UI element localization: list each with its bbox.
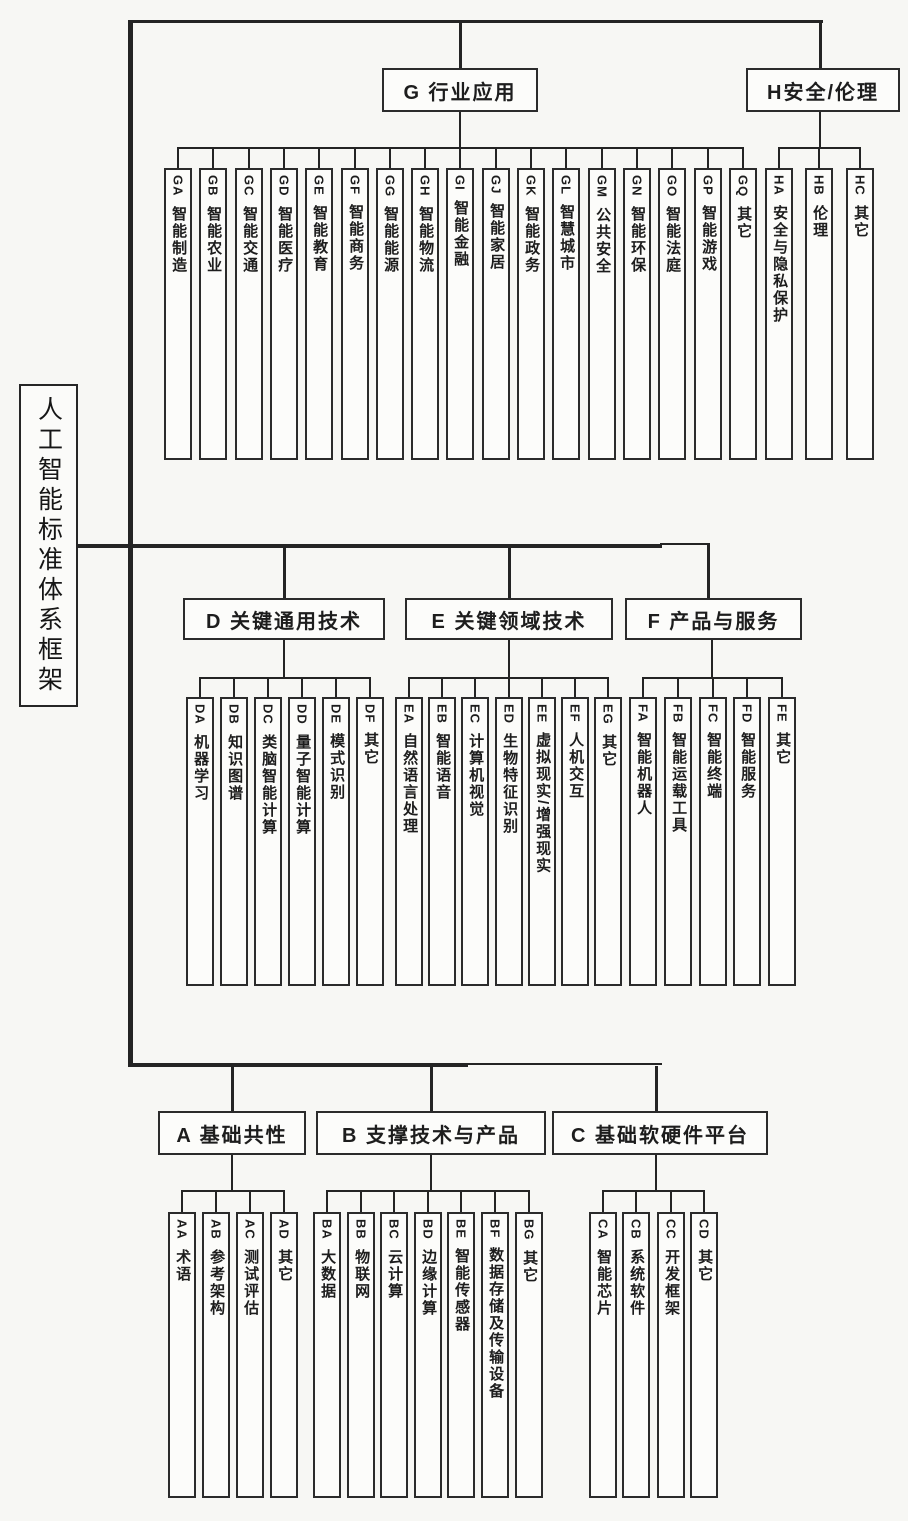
- connector-line: [128, 20, 823, 23]
- leaf-ca: CA智能芯片: [589, 1212, 617, 1498]
- connector-line: [495, 147, 497, 168]
- leaf-gj: GJ智能家居: [482, 168, 510, 460]
- leaf-name: 测试评估: [242, 1249, 258, 1317]
- leaf-code: DD: [296, 704, 309, 725]
- leaf-name: 智能传感器: [453, 1248, 469, 1333]
- connector-line: [601, 147, 603, 168]
- connector-line: [199, 677, 201, 697]
- leaf-name: 智能医疗: [276, 206, 292, 274]
- leaf-df: DF其它: [356, 697, 384, 986]
- leaf-ee: EE虚拟现实/增强现实: [528, 697, 556, 986]
- leaf-name: 智能家居: [488, 203, 504, 271]
- connector-line: [459, 22, 462, 68]
- leaf-code: EA: [403, 704, 416, 724]
- leaf-name: 系统软件: [628, 1249, 644, 1317]
- leaf-gm: GM公共安全: [588, 168, 616, 460]
- leaf-code: GO: [666, 175, 679, 197]
- leaf-ba: BA大数据: [313, 1212, 341, 1498]
- connector-line: [635, 1190, 637, 1212]
- leaf-name: 人机交互: [567, 732, 583, 800]
- leaf-code: AB: [210, 1219, 223, 1240]
- leaf-ha: HA安全与隐私保护: [765, 168, 793, 460]
- leaf-eg: EG其它: [594, 697, 622, 986]
- leaf-name: 术语: [174, 1249, 190, 1283]
- connector-line: [819, 112, 821, 148]
- leaf-name: 智慧城市: [558, 204, 574, 272]
- connector-line: [778, 147, 780, 168]
- leaf-eb: EB智能语音: [428, 697, 456, 986]
- connector-line: [181, 1190, 285, 1192]
- leaf-code: AC: [244, 1219, 257, 1240]
- connector-line: [602, 1190, 604, 1212]
- connector-line: [528, 1190, 530, 1212]
- leaf-code: HC: [854, 175, 867, 196]
- leaf-name: 其它: [852, 205, 868, 239]
- leaf-cc: CC开发框架: [657, 1212, 685, 1498]
- leaf-code: CB: [630, 1219, 643, 1240]
- connector-line: [508, 547, 511, 598]
- leaf-gh: GH智能物流: [411, 168, 439, 460]
- leaf-fb: FB智能运载工具: [664, 697, 692, 986]
- leaf-code: CD: [698, 1219, 711, 1240]
- leaf-aa: AA术语: [168, 1212, 196, 1498]
- leaf-bb: BB物联网: [347, 1212, 375, 1498]
- connector-line: [215, 1190, 217, 1212]
- leaf-code: DE: [330, 704, 343, 724]
- connector-line: [494, 1190, 496, 1212]
- leaf-name: 智能游戏: [700, 205, 716, 273]
- leaf-name: 智能制造: [170, 206, 186, 274]
- section-box-industry-applications: G 行业应用: [382, 68, 538, 112]
- leaf-bf: BF数据存储及传输设备: [481, 1212, 509, 1498]
- leaf-code: GC: [243, 175, 256, 197]
- leaf-name: 伦理: [811, 205, 827, 239]
- leaf-name: 智能服务: [739, 732, 755, 800]
- connector-line: [389, 147, 391, 168]
- leaf-name: 计算机视觉: [467, 733, 483, 818]
- leaf-da: DA机器学习: [186, 697, 214, 986]
- leaf-code: CC: [665, 1219, 678, 1240]
- leaf-name: 智能金融: [452, 200, 468, 268]
- connector-line: [859, 147, 861, 168]
- connector-line: [231, 1066, 234, 1111]
- leaf-name: 知识图谱: [226, 734, 242, 802]
- leaf-code: DC: [262, 704, 275, 725]
- leaf-name: 智能芯片: [595, 1249, 611, 1317]
- connector-line: [249, 1190, 251, 1212]
- leaf-name: 智能商务: [347, 204, 363, 272]
- section-box-basic-software-hardware-platform: C 基础软硬件平台: [552, 1111, 768, 1155]
- connector-line: [655, 1155, 657, 1191]
- leaf-cb: CB系统软件: [622, 1212, 650, 1498]
- connector-line: [677, 677, 679, 697]
- leaf-code: GG: [384, 175, 397, 197]
- leaf-ga: GA智能制造: [164, 168, 192, 460]
- leaf-dc: DC类脑智能计算: [254, 697, 282, 986]
- connector-line: [636, 147, 638, 168]
- connector-line: [607, 677, 609, 697]
- leaf-bc: BC云计算: [380, 1212, 408, 1498]
- leaf-gg: GG智能能源: [376, 168, 404, 460]
- connector-line: [707, 147, 709, 168]
- connector-line: [819, 22, 822, 68]
- leaf-code: BD: [422, 1219, 435, 1240]
- leaf-code: AA: [176, 1219, 189, 1240]
- leaf-gn: GN智能环保: [623, 168, 651, 460]
- connector-line: [318, 147, 320, 168]
- leaf-code: HA: [773, 175, 786, 196]
- leaf-name: 其它: [600, 734, 616, 768]
- connector-line: [508, 677, 510, 697]
- leaf-name: 其它: [362, 732, 378, 766]
- connector-line: [671, 147, 673, 168]
- leaf-name: 智能环保: [629, 206, 645, 274]
- leaf-name: 其它: [276, 1249, 292, 1283]
- leaf-ge: GE智能教育: [305, 168, 333, 460]
- leaf-code: FA: [637, 704, 650, 723]
- leaf-code: GM: [596, 175, 609, 198]
- connector-line: [712, 677, 714, 697]
- leaf-name: 虚拟现实/增强现实: [534, 732, 550, 874]
- connector-line: [283, 547, 286, 598]
- leaf-name: 物联网: [353, 1249, 369, 1300]
- connector-line: [602, 1190, 705, 1192]
- leaf-ad: AD其它: [270, 1212, 298, 1498]
- leaf-name: 开发框架: [663, 1249, 679, 1317]
- leaf-ed: ED生物特征识别: [495, 697, 523, 986]
- connector-line: [360, 1190, 362, 1212]
- section-box-foundation-commonality: A 基础共性: [158, 1111, 306, 1155]
- connector-line: [430, 1066, 433, 1111]
- leaf-gd: GD智能医疗: [270, 168, 298, 460]
- leaf-bg: BG其它: [515, 1212, 543, 1498]
- connector-line: [393, 1190, 395, 1212]
- leaf-code: DB: [228, 704, 241, 725]
- leaf-code: GK: [525, 175, 538, 197]
- connector-line: [212, 147, 214, 168]
- leaf-code: GQ: [737, 175, 750, 197]
- connector-line: [427, 1190, 429, 1212]
- connector-line: [655, 1066, 658, 1111]
- leaf-name: 量子智能计算: [294, 734, 310, 836]
- connector-line: [231, 1155, 233, 1191]
- leaf-code: EG: [602, 704, 615, 725]
- framework-title-box: 人工智能标准体系框架: [19, 384, 78, 707]
- connector-line: [742, 147, 744, 168]
- leaf-name: 智能终端: [705, 732, 721, 800]
- leaf-gb: GB智能农业: [199, 168, 227, 460]
- leaf-gp: GP智能游戏: [694, 168, 722, 460]
- leaf-code: GP: [702, 175, 715, 196]
- leaf-fa: FA智能机器人: [629, 697, 657, 986]
- leaf-name: 智能教育: [311, 205, 327, 273]
- connector-line: [474, 677, 476, 697]
- leaf-fe: FE其它: [768, 697, 796, 986]
- connector-line: [670, 1190, 672, 1212]
- leaf-de: DE模式识别: [322, 697, 350, 986]
- connector-line: [746, 677, 748, 697]
- leaf-code: EE: [536, 704, 549, 723]
- leaf-code: GB: [207, 175, 220, 197]
- leaf-ec: EC计算机视觉: [461, 697, 489, 986]
- leaf-code: HB: [813, 175, 826, 196]
- leaf-code: EC: [469, 704, 482, 724]
- connector-line: [177, 147, 179, 168]
- leaf-name: 类脑智能计算: [260, 734, 276, 836]
- leaf-name: 智能农业: [205, 206, 221, 274]
- leaf-gf: GF智能商务: [341, 168, 369, 460]
- connector-line: [301, 677, 303, 697]
- leaf-code: FB: [672, 704, 685, 723]
- leaf-name: 模式识别: [328, 733, 344, 801]
- leaf-name: 其它: [696, 1249, 712, 1283]
- leaf-gq: GQ其它: [729, 168, 757, 460]
- connector-line: [283, 640, 285, 678]
- section-box-key-general-technologies: D 关键通用技术: [183, 598, 385, 640]
- leaf-ef: EF人机交互: [561, 697, 589, 986]
- connector-line: [459, 112, 461, 148]
- connector-line: [466, 1063, 662, 1065]
- leaf-gl: GL智慧城市: [552, 168, 580, 460]
- leaf-ab: AB参考架构: [202, 1212, 230, 1498]
- section-box-products-services: F 产品与服务: [625, 598, 802, 640]
- leaf-code: GN: [631, 175, 644, 197]
- leaf-code: GJ: [490, 175, 503, 194]
- leaf-name: 其它: [735, 206, 751, 240]
- leaf-name: 边缘计算: [420, 1249, 436, 1317]
- leaf-hb: HB伦理: [805, 168, 833, 460]
- connector-line: [508, 640, 510, 678]
- connector-line: [818, 147, 820, 168]
- leaf-fd: FD智能服务: [733, 697, 761, 986]
- leaf-name: 其它: [774, 732, 790, 766]
- leaf-code: GE: [313, 175, 326, 196]
- leaf-name: 智能机器人: [635, 732, 651, 817]
- leaf-code: BB: [355, 1219, 368, 1240]
- leaf-gi: GI智能金融: [446, 168, 474, 460]
- connector-line: [703, 1190, 705, 1212]
- section-box-key-domain-technologies: E 关键领域技术: [405, 598, 613, 640]
- connector-line: [354, 147, 356, 168]
- leaf-code: DA: [194, 704, 207, 725]
- leaf-name: 其它: [521, 1250, 537, 1284]
- connector-line: [711, 640, 713, 678]
- leaf-gc: GC智能交通: [235, 168, 263, 460]
- connector-line: [459, 147, 461, 168]
- leaf-code: BA: [321, 1219, 334, 1240]
- leaf-gk: GK智能政务: [517, 168, 545, 460]
- leaf-name: 智能交通: [241, 206, 257, 274]
- ai-standards-framework-diagram: 人工智能标准体系框架 G 行业应用 H安全/伦理 D 关键通用技术 E 关键领域…: [0, 0, 908, 1521]
- leaf-code: BE: [455, 1219, 468, 1239]
- connector-line: [78, 544, 662, 548]
- connector-line: [181, 1190, 183, 1212]
- leaf-name: 安全与隐私保护: [771, 205, 787, 324]
- leaf-code: GF: [349, 175, 362, 195]
- connector-line: [460, 1190, 462, 1212]
- connector-line: [707, 543, 710, 598]
- leaf-code: GI: [454, 175, 467, 191]
- connector-line: [267, 677, 269, 697]
- leaf-fc: FC智能终端: [699, 697, 727, 986]
- leaf-code: AD: [278, 1219, 291, 1240]
- connector-line: [199, 677, 371, 679]
- connector-line: [335, 677, 337, 697]
- leaf-code: GD: [278, 175, 291, 197]
- leaf-hc: HC其它: [846, 168, 874, 460]
- connector-line: [233, 677, 235, 697]
- leaf-name: 自然语言处理: [401, 733, 417, 835]
- leaf-code: FC: [707, 704, 720, 723]
- leaf-name: 智能法庭: [664, 206, 680, 274]
- connector-line: [441, 677, 443, 697]
- connector-line: [128, 1063, 468, 1067]
- leaf-ac: AC测试评估: [236, 1212, 264, 1498]
- leaf-code: ED: [503, 704, 516, 724]
- leaf-name: 云计算: [386, 1249, 402, 1300]
- leaf-code: GA: [172, 175, 185, 197]
- leaf-name: 机器学习: [192, 734, 208, 802]
- framework-title: 人工智能标准体系框架: [31, 396, 67, 696]
- leaf-go: GO智能法庭: [658, 168, 686, 460]
- leaf-bd: BD边缘计算: [414, 1212, 442, 1498]
- leaf-name: 生物特征识别: [501, 733, 517, 835]
- section-box-supporting-tech-products: B 支撑技术与产品: [316, 1111, 546, 1155]
- connector-line: [408, 677, 410, 697]
- leaf-name: 智能能源: [382, 206, 398, 274]
- leaf-code: BF: [489, 1219, 502, 1238]
- leaf-code: CA: [597, 1219, 610, 1240]
- leaf-code: FD: [741, 704, 754, 723]
- connector-line: [781, 677, 783, 697]
- leaf-ea: EA自然语言处理: [395, 697, 423, 986]
- connector-line: [248, 147, 250, 168]
- leaf-name: 智能政务: [523, 206, 539, 274]
- leaf-name: 智能物流: [417, 206, 433, 274]
- connector-line: [574, 677, 576, 697]
- leaf-name: 参考架构: [208, 1249, 224, 1317]
- connector-line: [424, 147, 426, 168]
- leaf-name: 智能运载工具: [670, 732, 686, 834]
- connector-line: [530, 147, 532, 168]
- leaf-name: 公共安全: [594, 207, 610, 275]
- leaf-cd: CD其它: [690, 1212, 718, 1498]
- leaf-code: FE: [776, 704, 789, 723]
- connector-line: [283, 1190, 285, 1212]
- leaf-code: BG: [523, 1219, 536, 1241]
- leaf-dd: DD量子智能计算: [288, 697, 316, 986]
- connector-line: [283, 147, 285, 168]
- leaf-name: 数据存储及传输设备: [487, 1247, 503, 1400]
- connector-line: [326, 1190, 328, 1212]
- connector-line: [430, 1155, 432, 1191]
- connector-line: [541, 677, 543, 697]
- connector-line: [660, 543, 710, 545]
- connector-line: [369, 677, 371, 697]
- connector-line: [565, 147, 567, 168]
- leaf-code: GL: [560, 175, 573, 195]
- leaf-code: DF: [364, 704, 377, 723]
- leaf-db: DB知识图谱: [220, 697, 248, 986]
- leaf-name: 智能语音: [434, 733, 450, 801]
- connector-line: [642, 677, 644, 697]
- leaf-name: 大数据: [319, 1249, 335, 1300]
- leaf-be: BE智能传感器: [447, 1212, 475, 1498]
- leaf-code: EF: [569, 704, 582, 723]
- leaf-code: BC: [388, 1219, 401, 1240]
- section-box-safety-ethics: H安全/伦理: [746, 68, 900, 112]
- leaf-code: EB: [436, 704, 449, 724]
- leaf-code: GH: [419, 175, 432, 197]
